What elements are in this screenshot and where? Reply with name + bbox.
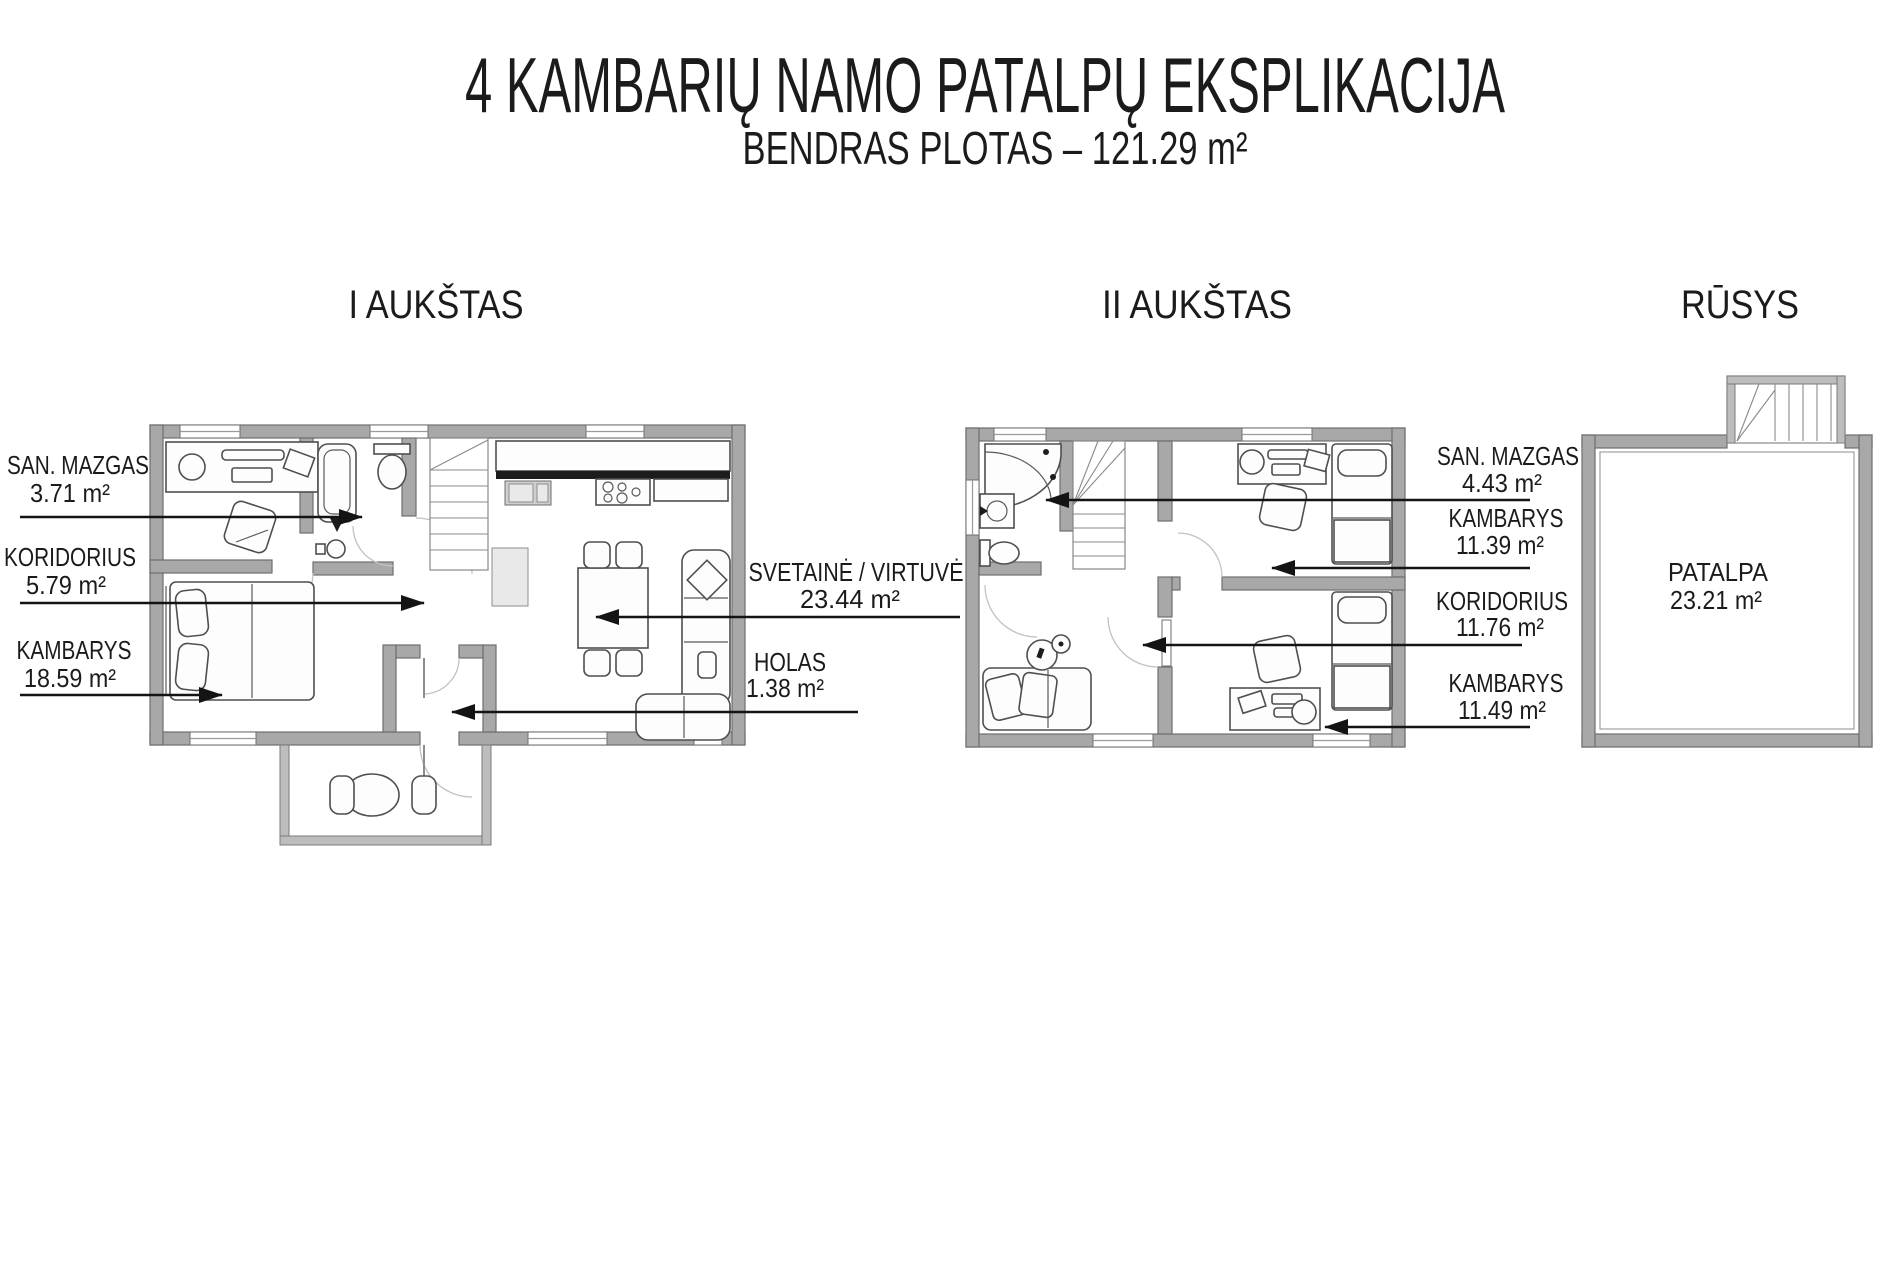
- page-title: 4 KAMBARIŲ NAMO PATALPŲ EKSPLIKACIJA: [465, 41, 1505, 129]
- desk-symbol: [166, 442, 318, 492]
- room-label: KAMBARYS: [1449, 503, 1564, 533]
- page-subtitle: BENDRAS PLOTAS – 121.29 m²: [743, 122, 1248, 174]
- desk-symbol: [1230, 688, 1320, 730]
- stairs-symbol: [1073, 441, 1125, 569]
- room-label: SVETAINĖ / VIRTUVĖ: [749, 557, 964, 587]
- floor-title-3: RŪSYS: [1681, 283, 1799, 327]
- room-area: 4.43 m²: [1462, 468, 1542, 498]
- dining-table-symbol: [578, 542, 648, 676]
- floorplan-sheet: 4 KAMBARIŲ NAMO PATALPŲ EKSPLIKACIJA BEN…: [0, 0, 1900, 1267]
- room-area: 11.76 m²: [1456, 612, 1544, 642]
- floor-plan-2: [966, 428, 1405, 747]
- bed-symbol: [1332, 444, 1392, 564]
- room-area: 23.21 m²: [1670, 585, 1762, 615]
- floor-plan-3: PATALPA 23.21 m²: [1582, 376, 1872, 747]
- room-area: 11.39 m²: [1456, 530, 1544, 560]
- stairs-symbol: [1727, 376, 1845, 443]
- room-label: SAN. MAZGAS: [7, 450, 149, 480]
- floor-plan-1: [150, 425, 745, 845]
- bed-symbol: [166, 582, 314, 700]
- room-label: KAMBARYS: [17, 635, 132, 665]
- sink-symbol: [980, 494, 1014, 528]
- floor-lamp-symbol: [1027, 635, 1070, 670]
- bed-symbol: [1332, 592, 1392, 710]
- room-area: 23.44 m²: [800, 584, 900, 614]
- floor-title-1: I AUKŠTAS: [349, 282, 524, 327]
- room-label: KAMBARYS: [1449, 668, 1564, 698]
- desk-symbol: [1238, 444, 1330, 484]
- room-label: SAN. MAZGAS: [1437, 441, 1579, 471]
- sofa-symbol: [983, 668, 1091, 730]
- chair-symbol: [222, 499, 277, 554]
- chair-symbol: [1252, 634, 1302, 684]
- room-label: PATALPA: [1668, 557, 1769, 587]
- kitchen-counter-symbol: [496, 441, 730, 505]
- sink-symbol: [316, 540, 345, 558]
- patio-table-symbol: [330, 774, 436, 816]
- stairs-symbol: [430, 438, 488, 570]
- floor-title-2: II AUKŠTAS: [1102, 282, 1292, 327]
- room-area: 5.79 m²: [26, 570, 106, 600]
- room-label: KORIDORIUS: [4, 542, 136, 572]
- room-area: 18.59 m²: [24, 663, 116, 693]
- room-area: 1.38 m²: [746, 673, 824, 703]
- room-area: 3.71 m²: [30, 478, 110, 508]
- room-area: 11.49 m²: [1458, 695, 1546, 725]
- toilet-symbol: [980, 540, 1019, 566]
- cabinet-symbol: [492, 548, 528, 606]
- bathtub-symbol: [318, 444, 356, 532]
- chair-symbol: [1258, 482, 1308, 532]
